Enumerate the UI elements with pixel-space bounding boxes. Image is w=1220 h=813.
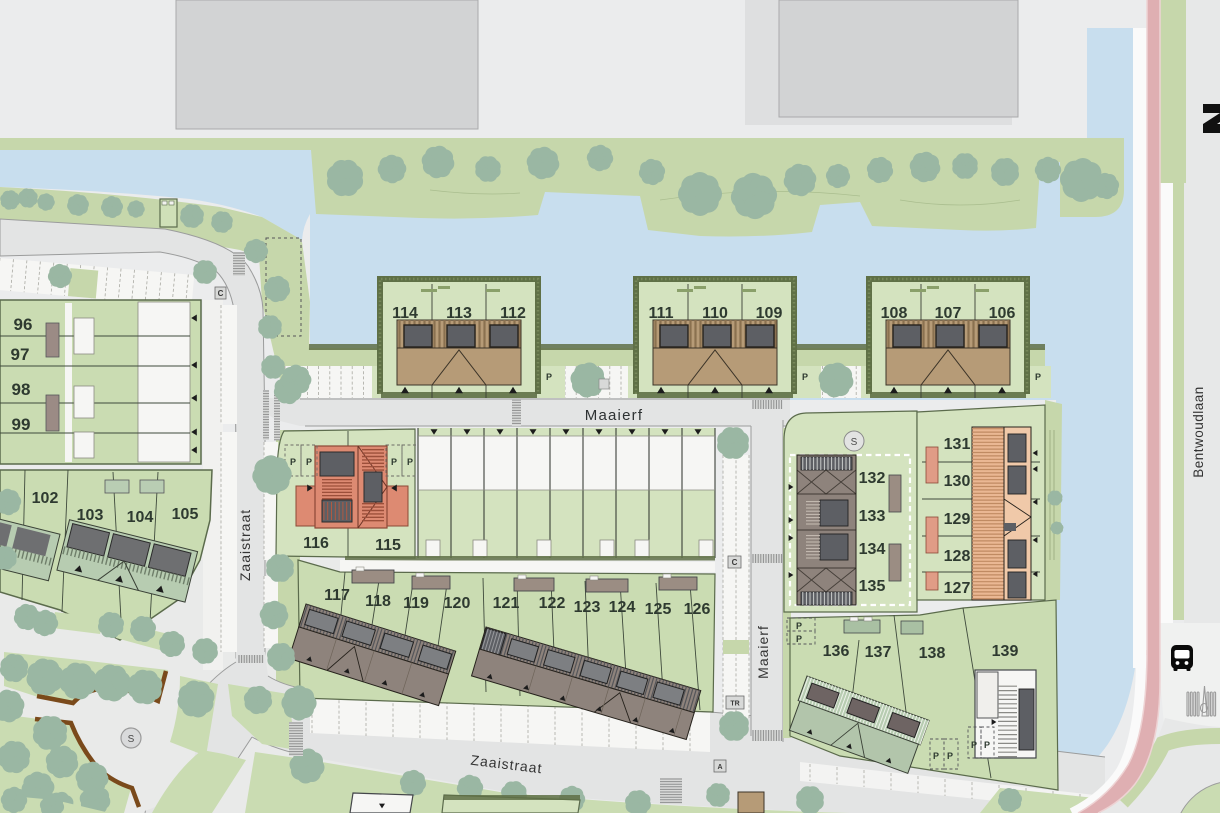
svg-text:P: P [1035, 372, 1041, 382]
svg-text:S: S [851, 437, 858, 448]
svg-text:118: 118 [365, 593, 391, 610]
svg-text:104: 104 [127, 509, 154, 526]
svg-text:P: P [933, 751, 939, 761]
svg-text:P: P [306, 457, 312, 467]
svg-text:Zaaistraat: Zaaistraat [237, 509, 253, 581]
svg-text:98: 98 [12, 380, 31, 399]
svg-text:P: P [290, 457, 296, 467]
svg-text:125: 125 [645, 601, 672, 618]
svg-text:P: P [546, 372, 552, 382]
svg-text:124: 124 [609, 599, 636, 616]
svg-text:P: P [802, 372, 808, 382]
svg-text:P: P [796, 634, 802, 644]
svg-text:116: 116 [303, 535, 329, 552]
svg-text:135: 135 [859, 578, 886, 595]
svg-text:102: 102 [32, 490, 59, 507]
svg-text:123: 123 [574, 599, 601, 616]
svg-text:113: 113 [446, 305, 472, 322]
svg-text:114: 114 [392, 305, 418, 322]
svg-text:128: 128 [944, 548, 971, 565]
svg-text:96: 96 [14, 315, 33, 334]
svg-text:P: P [984, 740, 990, 750]
svg-text:109: 109 [756, 305, 783, 322]
svg-text:107: 107 [935, 305, 962, 322]
svg-text:112: 112 [500, 305, 526, 322]
svg-text:126: 126 [684, 601, 711, 618]
svg-text:TR: TR [730, 701, 739, 708]
svg-text:P: P [391, 457, 397, 467]
svg-text:P: P [947, 751, 953, 761]
svg-text:C: C [732, 558, 738, 567]
svg-text:117: 117 [324, 587, 350, 604]
svg-text:P: P [796, 621, 802, 631]
svg-text:137: 137 [865, 644, 892, 661]
svg-text:139: 139 [992, 643, 1019, 660]
svg-text:P: P [971, 740, 977, 750]
svg-text:S: S [128, 734, 135, 745]
svg-text:131: 131 [944, 436, 971, 453]
svg-text:130: 130 [944, 473, 971, 490]
svg-text:138: 138 [919, 645, 946, 662]
svg-text:132: 132 [859, 470, 886, 487]
svg-text:97: 97 [11, 345, 30, 364]
svg-text:Maaierf: Maaierf [585, 407, 643, 424]
svg-text:115: 115 [375, 537, 401, 554]
svg-text:99: 99 [12, 415, 31, 434]
svg-text:133: 133 [859, 508, 886, 525]
svg-text:120: 120 [444, 595, 471, 612]
svg-text:134: 134 [859, 541, 886, 558]
svg-text:Bentwoudlaan: Bentwoudlaan [1191, 386, 1206, 478]
svg-text:110: 110 [702, 305, 728, 322]
svg-text:136: 136 [823, 643, 850, 660]
svg-text:103: 103 [77, 507, 104, 524]
svg-text:127: 127 [944, 580, 971, 597]
svg-text:106: 106 [989, 305, 1016, 322]
svg-text:121: 121 [493, 595, 520, 612]
svg-text:111: 111 [649, 305, 674, 322]
svg-text:122: 122 [539, 595, 566, 612]
svg-text:A: A [717, 764, 722, 771]
svg-text:C: C [218, 289, 224, 298]
svg-text:119: 119 [403, 595, 429, 612]
svg-text:105: 105 [172, 506, 199, 523]
svg-text:Maaierf: Maaierf [755, 625, 771, 679]
svg-text:129: 129 [944, 511, 971, 528]
svg-text:P: P [407, 457, 413, 467]
svg-text:108: 108 [881, 305, 908, 322]
